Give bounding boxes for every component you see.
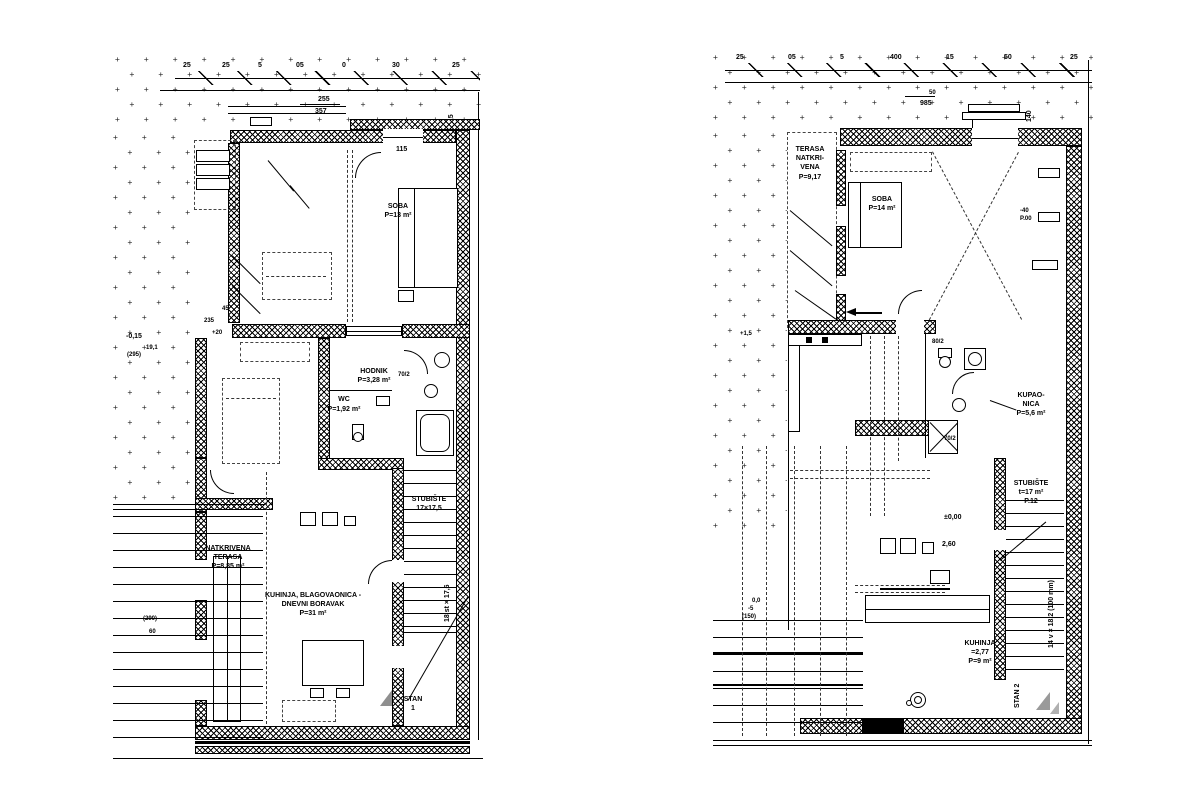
- counter-unit: [922, 542, 934, 554]
- plant-icon: [914, 696, 922, 704]
- north-arrow-icon: [380, 690, 392, 706]
- pergola-line: [820, 446, 821, 736]
- door-opening: [392, 560, 404, 582]
- ground-line: [113, 758, 483, 759]
- kuhinja-note: =2,77: [956, 649, 1004, 657]
- door-arc: [355, 152, 381, 178]
- bed-line: [860, 183, 861, 247]
- level-mark: +1,5: [740, 331, 752, 337]
- room-label-stubiste: STUBIŠTE: [402, 496, 456, 504]
- stair-treads: [1006, 500, 1064, 670]
- sink: [376, 396, 390, 406]
- partition: [347, 150, 348, 322]
- stair-note: 17×17,5: [402, 505, 456, 513]
- nightstand: [398, 290, 414, 302]
- terrace-edge: [113, 504, 265, 505]
- partition: [898, 336, 899, 461]
- dim-sub: 50: [929, 90, 936, 96]
- room-label-kuhinja2: DNEVNI BORAVAK: [248, 601, 378, 609]
- partition: [352, 150, 353, 322]
- stair-note: t=17 m²: [1000, 489, 1062, 497]
- stair-vert-note: 14 v × 18,2 (100 mm): [1048, 580, 1055, 648]
- wall-hatched: [402, 324, 470, 338]
- wardrobe: [850, 152, 932, 172]
- room-label-kuhinja: KUHINJA: [956, 640, 1004, 648]
- level-mark: (295): [127, 352, 141, 358]
- stair-landing: [404, 632, 456, 633]
- room-area-terasa: P=9,17: [786, 174, 834, 182]
- room-label-terasa: TERASA: [786, 146, 834, 154]
- dim-number: 05: [296, 62, 304, 69]
- wall-hatched: [836, 150, 846, 206]
- partition: [266, 472, 267, 724]
- dim-number: 25: [222, 62, 230, 69]
- bed: [848, 182, 902, 248]
- leader-line: [905, 96, 935, 97]
- room-label-terasa: NATKRIVENA: [198, 545, 258, 553]
- wall-hatched: [195, 338, 207, 458]
- plant-icon: [906, 700, 912, 706]
- room-area-kuhinja: P=9 m²: [956, 658, 1004, 666]
- dimension-line: [160, 90, 480, 91]
- sofa: [282, 700, 336, 722]
- wall: [862, 718, 904, 734]
- void-cross: [929, 152, 1019, 320]
- room-label-stubiste: STUBIŠTE: [1000, 480, 1062, 488]
- room-area-soba: P=13 m²: [370, 212, 426, 220]
- level-mark: -0,15: [126, 333, 142, 340]
- small-dim: -40: [1020, 208, 1029, 214]
- partition: [884, 336, 885, 516]
- unit-tag: STAN: [396, 696, 430, 704]
- door-size-note: 80/2: [932, 339, 944, 345]
- level-mark: 0,0: [752, 598, 760, 604]
- partition: [870, 336, 871, 516]
- level-mark: (290): [143, 616, 157, 622]
- washing-machine-drum: [968, 352, 982, 366]
- counter-unit: [300, 512, 316, 526]
- radiator: [1038, 168, 1060, 178]
- pergola-line: [766, 446, 767, 736]
- door-opening: [896, 318, 924, 336]
- door-opening: [994, 530, 1006, 550]
- terrace-edge: [713, 652, 863, 654]
- sink: [952, 398, 966, 412]
- overhang-line: [228, 106, 346, 107]
- dim-total: 985: [920, 100, 932, 107]
- room-label-terasa2: NATKRI-: [786, 155, 834, 163]
- direction-arrow-icon: [846, 308, 856, 316]
- level-mark: (150): [742, 614, 756, 620]
- door-leaf: [972, 138, 1018, 139]
- dimension-line: [725, 82, 1092, 83]
- section-mark: [290, 185, 310, 209]
- counter-unit: [900, 538, 916, 554]
- arrow-line: [852, 312, 882, 314]
- radiator: [1032, 260, 1058, 270]
- wall-hatched: [836, 226, 846, 276]
- room-label-terasa2: TERASA: [198, 554, 258, 562]
- dim-number: 25: [452, 62, 460, 69]
- dimension-ticks: [175, 71, 480, 85]
- room-area-kupaonica: P=5,6 m²: [1006, 410, 1056, 418]
- room-area-terasa: P=8,85 m²: [198, 563, 258, 571]
- step: [196, 164, 230, 176]
- step: [196, 150, 230, 162]
- terrace-decking: [713, 620, 863, 738]
- ground-line: [713, 745, 1092, 746]
- unit-tag: STAN 2: [1014, 684, 1022, 708]
- step: [196, 178, 230, 190]
- leader-line: [300, 104, 340, 105]
- step: [962, 112, 1026, 120]
- dim-number: 50: [1004, 54, 1012, 61]
- door-arc: [898, 290, 922, 314]
- wall-hatched: [855, 420, 935, 436]
- room-label-kupaonica2: NICA: [1006, 401, 1056, 409]
- hob: [822, 337, 828, 343]
- floor-joint: [855, 585, 945, 586]
- room-label-hodnik: HODNIK: [352, 368, 396, 376]
- door-arc: [952, 372, 974, 394]
- bed-line: [226, 398, 276, 399]
- counter-unit: [880, 538, 896, 554]
- room-label-wc: WC: [326, 396, 362, 404]
- bed-dashed: [222, 378, 280, 464]
- room-label-kuhinja: KUHINJA, BLAGOVAONICA -: [248, 592, 378, 600]
- radiator: [1038, 212, 1060, 222]
- wall-hatched: [1066, 146, 1082, 734]
- ground-stipple: + + + + + + + + + + + + + + + + + + + + …: [713, 50, 1093, 128]
- room-area-hodnik: P=3,28 m²: [352, 377, 396, 385]
- toilet: [939, 356, 951, 368]
- door-leaf: [383, 137, 423, 138]
- dim-number: 30: [392, 62, 400, 69]
- level-mark: 2,60: [942, 541, 956, 548]
- hob: [806, 337, 812, 343]
- floor-joint: [855, 592, 945, 593]
- wall-line: [330, 390, 392, 391]
- dim-number: 25: [736, 54, 744, 61]
- level-mark: -5: [748, 606, 753, 612]
- door-arc: [368, 560, 392, 584]
- wall-hatched: [840, 128, 1082, 146]
- dim-number: 05: [788, 54, 796, 61]
- stair-vert-note: 18 st × 17,6: [444, 584, 451, 622]
- terrace-edge: [113, 509, 265, 510]
- level-mark: 60: [149, 629, 156, 635]
- terrace-edge: [713, 684, 863, 686]
- ground-line: [713, 740, 1092, 741]
- wardrobe-line: [266, 276, 326, 277]
- overhang-line: [228, 113, 346, 114]
- chair: [336, 688, 350, 698]
- counter-unit: [344, 516, 356, 526]
- canopy: [250, 117, 272, 126]
- level-mark: ±0,00: [944, 514, 961, 521]
- floor-joint: [790, 470, 930, 471]
- small-dim: 45: [222, 306, 229, 312]
- room-area-wc: P=1,92 m²: [322, 406, 366, 414]
- dim-total: 255: [318, 96, 330, 103]
- wall-line: [925, 334, 926, 458]
- chair: [310, 688, 324, 698]
- counter-unit: [322, 512, 338, 526]
- floorplan-sheet: + + + + + + + + + + + + + + + + + + + + …: [0, 0, 1200, 800]
- wall-hatched: [456, 130, 470, 740]
- dimension-ticks: [725, 63, 1092, 77]
- stair-note2: P.12: [1000, 498, 1062, 506]
- room-label-kupaonica: KUPAO-: [1006, 392, 1056, 400]
- pergola-line: [846, 446, 847, 736]
- floor-joint: [790, 478, 930, 479]
- room-area-kuhinja: P=31 m²: [248, 610, 378, 618]
- window-line: [346, 331, 402, 332]
- wall-hatched: [232, 324, 346, 338]
- dim-number: 0: [342, 62, 346, 69]
- pergola-line: [742, 446, 743, 736]
- counter: [788, 334, 800, 432]
- wardrobe: [240, 342, 310, 362]
- dim-number: 25: [1070, 54, 1078, 61]
- dim-number: 400: [890, 54, 902, 61]
- door-opening: [972, 126, 1018, 148]
- unit-tag: 1: [396, 705, 430, 713]
- room-label-soba: SOBA: [852, 196, 912, 204]
- door-arc: [210, 470, 234, 494]
- dimension-line: [1088, 60, 1089, 744]
- pergola-line: [794, 446, 795, 736]
- toilet: [353, 432, 363, 442]
- small-dim: 235: [204, 318, 214, 324]
- north-arrow-icon: [1050, 702, 1059, 714]
- ground-stipple: + + + + + + + + + + + + + + + + + + + + …: [713, 128, 787, 528]
- sink: [930, 570, 950, 584]
- bathtub-inner: [420, 414, 450, 452]
- room-label-soba: SOBA: [370, 203, 426, 211]
- counter-edge: [880, 588, 950, 590]
- dim-number: 5: [840, 54, 844, 61]
- sink: [424, 384, 438, 398]
- room-label-terasa3: VENA: [786, 164, 834, 172]
- ground-stipple: + + + + + + + + + + + + + + + + + + + + …: [113, 130, 195, 505]
- door-size-note: 70/2: [944, 436, 956, 442]
- north-arrow-icon: [1036, 692, 1050, 710]
- dim-number: 25: [183, 62, 191, 69]
- small-dim: P.00: [1020, 216, 1032, 222]
- wall-line: [788, 330, 789, 630]
- dim-number: 15: [946, 54, 954, 61]
- dim-vertical: 140: [1026, 110, 1033, 122]
- counter-line: [866, 609, 989, 610]
- table: [302, 640, 364, 686]
- step: [968, 104, 1020, 112]
- dim-number: 5: [258, 62, 262, 69]
- room-area-soba: P=14 m²: [852, 205, 912, 213]
- door-opening: [392, 646, 404, 668]
- door-arc: [404, 350, 428, 374]
- door-dim: 115: [396, 146, 407, 153]
- dimension-line: [478, 92, 479, 740]
- void-cross: [932, 152, 1022, 320]
- small-dim: +20: [212, 330, 222, 336]
- level-mark: 19,1: [146, 345, 158, 351]
- boiler: [434, 352, 450, 368]
